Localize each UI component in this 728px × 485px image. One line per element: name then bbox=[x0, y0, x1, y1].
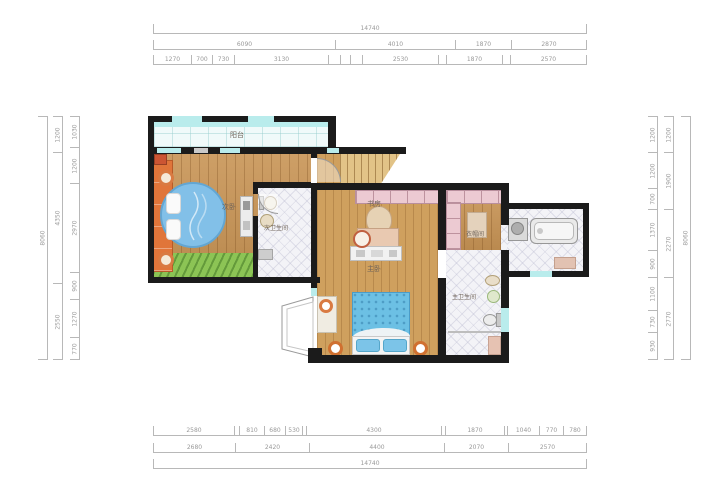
desk-item bbox=[356, 250, 365, 257]
wall bbox=[148, 277, 320, 283]
bathtub-drain bbox=[537, 228, 543, 234]
dim-row-bottom-total: 14740 bbox=[153, 459, 587, 469]
pillow bbox=[166, 219, 181, 240]
window bbox=[311, 288, 317, 296]
plant bbox=[487, 290, 500, 303]
pillow bbox=[356, 339, 380, 352]
washing-machine-door bbox=[511, 222, 524, 235]
laundry-door-floor bbox=[501, 225, 507, 250]
dim-col-left-outer: 120043502550 bbox=[53, 116, 63, 360]
nightstand bbox=[158, 252, 174, 268]
wall bbox=[438, 183, 446, 250]
window bbox=[327, 148, 339, 153]
room-label-cloakroom: 衣帽间 bbox=[466, 231, 484, 239]
desk-item bbox=[371, 250, 383, 257]
balcony-window-band bbox=[154, 122, 328, 127]
dim-col-right-detail: 1200120070013709001100730930 bbox=[648, 116, 658, 360]
dim-row-top-detail: 12707007303130253018702570 bbox=[153, 55, 587, 65]
wall bbox=[311, 355, 509, 363]
room-label-secondary-bathroom: 次卫生间 bbox=[264, 225, 288, 233]
speaker-box bbox=[154, 154, 167, 165]
dim-row-bottom-groups: 26802420440020702570 bbox=[153, 443, 587, 453]
wall bbox=[253, 182, 311, 188]
window bbox=[157, 148, 181, 153]
desk-item bbox=[389, 250, 397, 257]
room-label-balcony: 阳台 bbox=[230, 131, 244, 139]
wall bbox=[148, 153, 154, 283]
dim-col-right-total: 8060 bbox=[681, 116, 691, 360]
nightstand bbox=[158, 170, 174, 186]
wall bbox=[501, 332, 509, 363]
cloakroom-cabinet-left bbox=[446, 202, 461, 250]
room-label-master-bathroom: 主卫生间 bbox=[452, 294, 476, 302]
nightstand bbox=[328, 341, 343, 356]
dim-row-top-total: 14740 bbox=[153, 24, 587, 34]
wall bbox=[501, 203, 589, 209]
room-label-study: 书房 bbox=[367, 200, 381, 208]
window bbox=[248, 116, 274, 122]
wall bbox=[501, 250, 509, 308]
dim-col-right-outer: 1200190022702770 bbox=[664, 116, 674, 360]
dim-row-top-groups: 6090401018702870 bbox=[153, 40, 587, 50]
shower-partition bbox=[448, 331, 501, 333]
dim-col-left-total: 8060 bbox=[38, 116, 48, 360]
bed-wave-decor bbox=[186, 188, 220, 244]
wall bbox=[438, 278, 446, 355]
sink bbox=[485, 275, 500, 286]
lamp bbox=[319, 299, 333, 313]
wall bbox=[148, 147, 406, 154]
wall bbox=[583, 203, 589, 277]
door bbox=[501, 308, 509, 332]
nightstand bbox=[413, 341, 428, 356]
window bbox=[172, 116, 202, 122]
wall bbox=[311, 183, 509, 190]
toilet bbox=[483, 314, 497, 326]
tv-stand-item bbox=[243, 221, 250, 230]
room-label-secondary-bedroom: 次卧 bbox=[222, 203, 236, 211]
floor-plan: 14740 6090401018702870 12707007303130253… bbox=[0, 0, 728, 485]
dim-col-left-detail: 1030120029709001270770 bbox=[70, 116, 80, 360]
pillow bbox=[166, 193, 181, 214]
wall bbox=[253, 216, 258, 277]
dim-row-bottom-detail: 2580810680530430018701040770780 bbox=[153, 426, 587, 436]
window bbox=[220, 148, 240, 153]
shower-mat bbox=[488, 336, 501, 355]
laundry-mat bbox=[554, 257, 576, 269]
window bbox=[530, 271, 552, 277]
wall bbox=[253, 188, 258, 194]
tv bbox=[243, 201, 250, 210]
door-sill bbox=[194, 148, 208, 153]
wall-clock bbox=[353, 230, 371, 248]
wall bbox=[311, 153, 317, 158]
pillow bbox=[383, 339, 407, 352]
wall bbox=[311, 184, 317, 288]
bath-mat bbox=[258, 249, 273, 260]
room-label-master-bedroom: 主卧 bbox=[367, 265, 381, 273]
